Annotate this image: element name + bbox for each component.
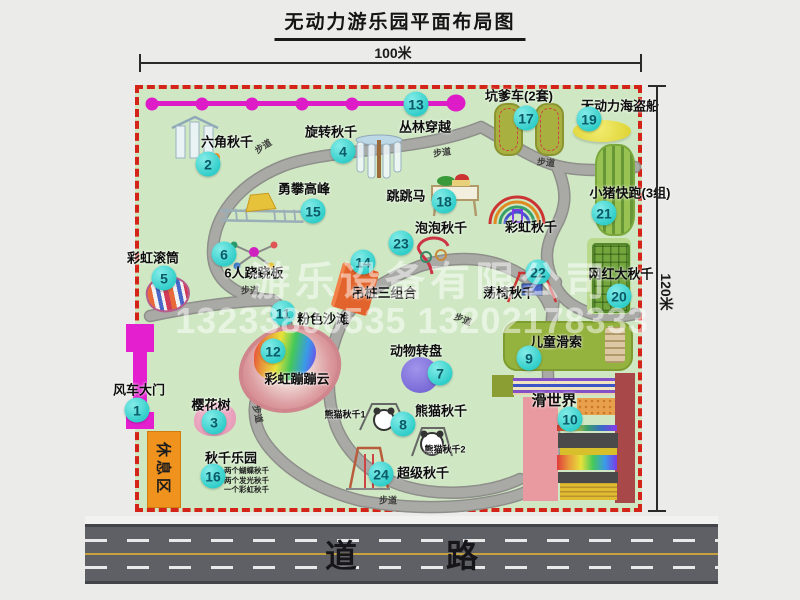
top-dimension-tick-right — [640, 54, 642, 72]
badge-seesaw: 6 — [212, 242, 237, 267]
trail-label: 步道 — [536, 155, 555, 170]
trail-label: 步道 — [241, 284, 259, 297]
label-rainbow-roller: 彩虹滚筒 — [127, 248, 179, 267]
label-jumping-horse: 跳跳马 — [386, 186, 425, 205]
badge-rainbow-roller: 5 — [152, 266, 177, 291]
park-layout-plan: 无动力游乐园平面布局图 100米 120米 步道 步道 步 — [0, 0, 800, 600]
label-panda-swing-1: 熊猫秋千1 — [324, 408, 365, 421]
label-hanging-post-combo: 吊桩三组合 — [351, 283, 416, 302]
zipline-end-icon — [447, 95, 466, 112]
badge-pirate-ship: 19 — [577, 107, 602, 132]
label-net-swing: 网红大秋千 — [588, 264, 653, 283]
badge-kids-zipline: 9 — [517, 346, 542, 371]
zipline-dot-icon — [196, 98, 209, 111]
slide-strip — [560, 448, 617, 455]
road-label: 道 路 — [285, 531, 518, 577]
badge-piggy-run: 21 — [592, 201, 617, 226]
label-hexagon-swing: 六角秋千 — [201, 132, 253, 151]
badge-slide-world: 10 — [558, 407, 583, 432]
gate-icon — [126, 324, 154, 352]
label-piggy-run: 小猪快跑(3组) — [590, 183, 671, 202]
label-panda-swing-2: 熊猫秋千2 — [424, 443, 465, 456]
label-animal-carousel: 动物转盘 — [390, 341, 442, 360]
sidewalk — [85, 516, 718, 524]
badge-panda-swing: 8 — [391, 412, 416, 437]
slide-pink-deck — [523, 397, 558, 501]
slide-rainbow — [557, 455, 617, 470]
badge-net-swing: 20 — [607, 284, 632, 309]
rotating-swing-icon — [350, 130, 408, 184]
badge-super-swing: 24 — [369, 462, 394, 487]
zipline-dot-icon — [246, 98, 259, 111]
badge-animal-carousel: 7 — [428, 361, 453, 386]
label-bubble-swing: 泡泡秋千 — [415, 218, 467, 237]
label-rainbow-bounce-cloud: 彩虹蹦蹦云 — [264, 369, 329, 388]
swing-park-notes: 两个蝴蝶秋千 两个发光秋千 一个彩虹秋千 — [224, 466, 269, 495]
label-pink-beach: 粉色沙滩 — [297, 309, 349, 328]
label-rainbow-arc-swing: 彩虹秋千 — [505, 217, 557, 236]
label-panda-swing: 熊猫秋千 — [415, 401, 467, 420]
zipline-ladder-icon — [605, 327, 625, 363]
badge-rainbow-bounce-cloud: 12 — [261, 339, 286, 364]
label-windmill-gate: 风车大门 — [113, 380, 165, 399]
zipline-dot-icon — [146, 98, 159, 111]
zipline-dot-icon — [296, 98, 309, 111]
label-kids-zipline: 儿童滑索 — [530, 332, 582, 351]
rest-area: 休息区 — [147, 431, 181, 508]
badge-swing-chair: 22 — [526, 260, 551, 285]
right-dimension-label: 120米 — [656, 273, 676, 310]
kengdie-car-track-icon — [535, 103, 564, 156]
road: 道 路 — [85, 524, 718, 584]
label-jungle-crossing: 丛林穿越 — [399, 117, 451, 136]
bubble-swing-icon — [408, 230, 456, 276]
badge-pink-beach: 11 — [271, 301, 296, 326]
label-kengdie-car: 坑爹车(2套) — [485, 86, 553, 105]
swing-park-note: 两个发光秋千 — [224, 476, 269, 486]
badge-swing-park: 16 — [201, 464, 226, 489]
zipline-dot-icon — [346, 98, 359, 111]
badge-hanging-post-combo: 14 — [351, 250, 376, 275]
top-dimension-label: 100米 — [374, 43, 411, 63]
slide-wall — [615, 373, 635, 503]
slide-strip — [558, 433, 618, 448]
rest-area-label: 休息区 — [154, 442, 175, 496]
badge-windmill-gate: 1 — [125, 398, 150, 423]
track-inner — [540, 108, 559, 151]
label-swing-chair: 荡椅秋千 — [483, 283, 535, 302]
page-title: 无动力游乐园平面布局图 — [274, 7, 525, 41]
trail-label: 步道 — [432, 144, 452, 159]
swing-park-note: 两个蝴蝶秋千 — [224, 466, 269, 476]
slide-dotted-block — [577, 398, 615, 415]
label-climbing-peak: 勇攀高峰 — [278, 179, 330, 198]
badge-jumping-horse: 18 — [432, 189, 457, 214]
badge-kengdie-car: 17 — [514, 106, 539, 131]
badge-climbing-peak: 15 — [301, 199, 326, 224]
badge-jungle-crossing: 13 — [404, 92, 429, 117]
slide-block — [492, 375, 514, 397]
label-super-swing: 超级秋千 — [397, 463, 449, 482]
label-seesaw: 6人跷跷板 — [224, 263, 283, 282]
label-rotating-swing: 旋转秋千 — [305, 122, 357, 141]
right-dimension-tick-top — [648, 85, 666, 87]
swing-park-note: 一个彩虹秋千 — [224, 485, 269, 495]
slide-wavy — [560, 483, 617, 500]
trail-label: 步道 — [379, 494, 397, 507]
badge-cherry-tree: 3 — [202, 410, 227, 435]
badge-hexagon-swing: 2 — [196, 152, 221, 177]
slide-strip — [558, 472, 618, 483]
badge-bubble-swing: 23 — [389, 231, 414, 256]
badge-rotating-swing: 4 — [331, 139, 356, 164]
right-dimension-tick-bottom — [648, 510, 666, 512]
top-dimension-tick-left — [139, 54, 141, 72]
